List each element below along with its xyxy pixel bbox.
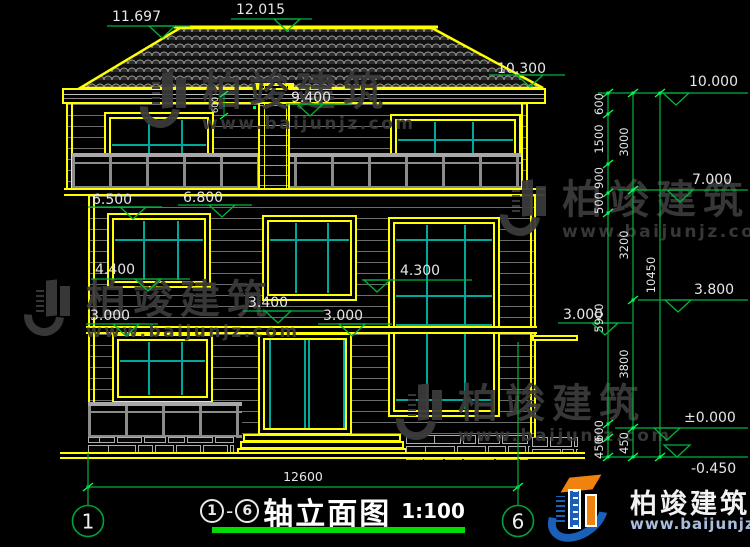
level-text-9.400: 9.400 xyxy=(291,90,331,106)
brand-logo-block: 柏竣建筑 www.baijunjz.com xyxy=(542,474,750,544)
dim-label-3800: 3800 xyxy=(617,349,631,378)
dim-node xyxy=(607,163,610,166)
level-triangle-3.400 xyxy=(265,311,291,323)
logo-tower-icon xyxy=(568,489,581,529)
level-text-12.015: 12.015 xyxy=(236,2,285,18)
level-triangle-3.800 xyxy=(665,300,691,312)
title-axis-end: 6 xyxy=(235,499,259,523)
level-text-10.000: 10.000 xyxy=(689,74,738,90)
level-triangle-12.015 xyxy=(274,19,300,31)
dimension-annotations: 11.69712.01510.3009.4006.5006.8004.4004.… xyxy=(0,0,750,547)
level-triangle-6.500 xyxy=(120,207,146,219)
dim-node xyxy=(607,192,610,195)
axis-number-6: 6 xyxy=(512,510,525,534)
level-text-3.400: 3.400 xyxy=(248,295,288,311)
dim-label-450: 450 xyxy=(592,437,606,459)
dim-label-10450: 10450 xyxy=(644,257,658,294)
axis-number-1: 1 xyxy=(82,510,95,534)
dim-node xyxy=(659,92,662,95)
dim-node xyxy=(607,423,610,426)
level-text-4.400: 4.400 xyxy=(95,262,135,278)
level-text-7.000: 7.000 xyxy=(692,172,732,188)
dim-node xyxy=(607,113,610,116)
level-triangle-4.300 xyxy=(364,280,390,292)
dim-label-3000: 3000 xyxy=(617,127,631,156)
dim-node xyxy=(632,189,635,192)
dim-bottom-label: 12600 xyxy=(283,469,323,484)
level-triangle-4.400 xyxy=(135,279,161,291)
dim-label-600: 600 xyxy=(592,93,606,115)
level-text-10.300: 10.300 xyxy=(497,61,546,77)
level-text-3.000: 3.000 xyxy=(90,308,130,324)
dim-label-450: 450 xyxy=(617,432,631,454)
dim-node xyxy=(607,437,610,440)
level-text-6.800: 6.800 xyxy=(183,190,223,206)
drawing-title: 1 - 6 轴立面图 1:100 xyxy=(200,491,465,531)
dim-label-500: 500 xyxy=(592,192,606,214)
dim-node xyxy=(632,299,635,302)
level-text-11.697: 11.697 xyxy=(112,9,161,25)
dim-node xyxy=(632,92,635,95)
level-triangle-±0.000 xyxy=(654,428,680,440)
level-triangle--0.450 xyxy=(664,445,690,457)
level-text-6.500: 6.500 xyxy=(92,192,132,208)
logo-tower2-icon xyxy=(585,494,597,527)
level-triangle-11.697 xyxy=(149,26,175,38)
dim-node xyxy=(607,456,610,459)
level-text-4.300: 4.300 xyxy=(400,263,440,279)
title-dash: - xyxy=(226,499,233,523)
brand-url: www.baijunjz.com xyxy=(630,515,750,533)
dim-small-label: 600 xyxy=(211,97,221,113)
dim-label-1500: 1500 xyxy=(592,124,606,153)
level-text-3.000: 3.000 xyxy=(323,308,363,324)
level-triangle-10.000 xyxy=(663,93,689,105)
level-triangle-7.000 xyxy=(667,190,693,202)
level-triangle-3.000 xyxy=(113,324,139,336)
title-underline xyxy=(212,527,465,533)
level-text-3.800: 3.800 xyxy=(694,282,734,298)
dim-label-900: 900 xyxy=(592,167,606,189)
cad-elevation-drawing: 柏竣建筑 www.baijunjz.com 柏竣建筑 www.baijunjz.… xyxy=(0,0,750,547)
dim-node xyxy=(607,92,610,95)
dim-node xyxy=(659,456,662,459)
dim-label-3200: 3200 xyxy=(617,230,631,259)
dim-node xyxy=(632,456,635,459)
dim-node xyxy=(607,212,610,215)
level-triangle-6.800 xyxy=(209,205,235,217)
dim-node xyxy=(632,427,635,430)
level-text-±0.000: ±0.000 xyxy=(684,410,736,426)
logo-window-dots-icon xyxy=(556,496,565,522)
title-axis-start: 1 xyxy=(200,499,224,523)
title-scale: 1:100 xyxy=(401,499,465,523)
level-triangle-3.000 xyxy=(339,324,365,336)
dim-label-5900: 5900 xyxy=(592,303,606,332)
